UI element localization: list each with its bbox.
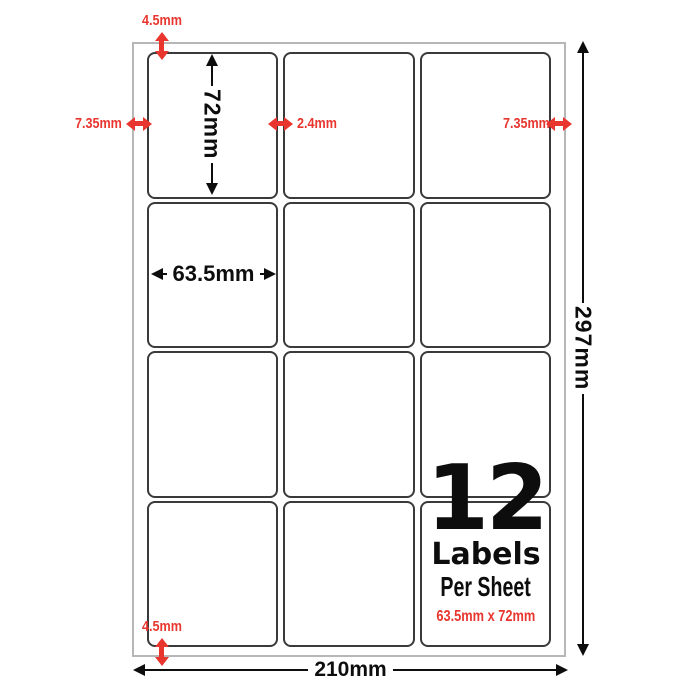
label-count: 12 — [420, 466, 552, 533]
page-height-dimension: 297mm — [570, 41, 596, 656]
right-margin-label: 7.35mm — [494, 115, 542, 132]
column-gap-arrow-icon — [268, 116, 293, 131]
arrow-down-icon — [577, 644, 589, 656]
left-margin-label: 7.35mm — [58, 115, 122, 132]
dimension-line — [145, 669, 308, 672]
arrow-left-icon — [151, 268, 163, 280]
top-margin-arrow-icon — [154, 32, 169, 60]
label-size-text: 63.5mm x 72mm — [420, 608, 552, 626]
arrow-up-icon — [206, 54, 218, 66]
arrow-left-icon — [133, 664, 145, 676]
arrow-up-icon — [577, 41, 589, 53]
page-width-dimension: 210mm — [133, 657, 568, 683]
label-height-value: 72mm — [199, 89, 226, 159]
dimension-line — [582, 53, 585, 303]
dimension-line — [163, 273, 167, 276]
labels-word: Labels — [420, 540, 552, 570]
arrow-right-icon — [264, 268, 276, 280]
per-sheet-text: Per Sheet — [420, 573, 552, 601]
label-cell — [283, 501, 414, 648]
page-width-value: 210mm — [314, 658, 386, 682]
label-height-dimension: 72mm — [199, 54, 225, 195]
label-cell — [283, 351, 414, 498]
label-sheet-diagram: 72mm 63.5mm 297mm 210mm 4.5mm 7.35mm — [0, 0, 700, 700]
labels-per-sheet-badge: 12 Labels Per Sheet 63.5mm x 72mm — [420, 466, 552, 626]
dimension-line — [211, 163, 214, 183]
bottom-margin-label: 4.5mm — [142, 618, 190, 635]
top-margin-label: 4.5mm — [142, 12, 190, 29]
page-height-value: 297mm — [570, 306, 597, 390]
label-cell — [420, 202, 551, 349]
label-width-value: 63.5mm — [173, 261, 255, 287]
dimension-line — [582, 394, 585, 644]
left-margin-arrow-icon — [126, 116, 152, 131]
dimension-line — [211, 66, 214, 86]
arrow-right-icon — [556, 664, 568, 676]
dimension-line — [393, 669, 556, 672]
column-gap-label: 2.4mm — [297, 115, 345, 132]
right-margin-arrow-icon — [546, 116, 572, 131]
label-width-dimension: 63.5mm — [151, 261, 276, 287]
label-cell — [283, 202, 414, 349]
bottom-margin-arrow-icon — [154, 638, 169, 666]
arrow-down-icon — [206, 183, 218, 195]
label-cell — [147, 351, 278, 498]
